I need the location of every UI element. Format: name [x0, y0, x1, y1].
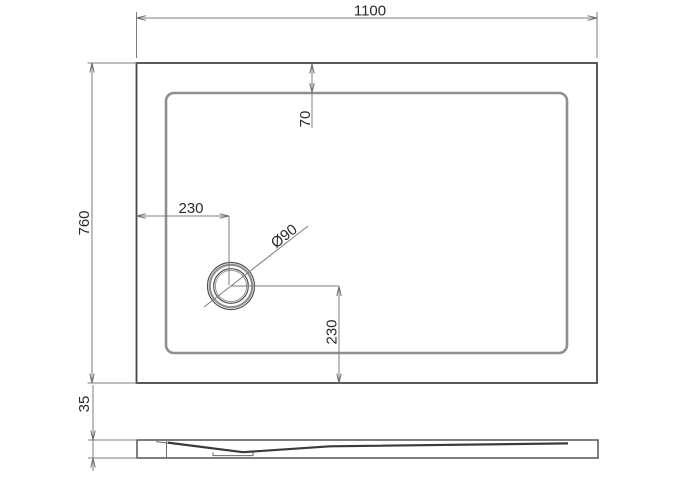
- dim-width-1100: 1100: [137, 3, 598, 59]
- shower-tray-technical-drawing: 1100 760 70 230: [0, 0, 675, 478]
- dim-label-drain-x: 230: [178, 200, 203, 217]
- tray-inner-rim-edge: [166, 93, 567, 353]
- drain-diameter-callout: Ø90: [204, 221, 308, 307]
- tray-profile-outline: [137, 440, 598, 458]
- dim-label-height: 35: [76, 396, 93, 413]
- basin-floor-line: [243, 443, 568, 452]
- dim-label-width: 1100: [354, 3, 386, 20]
- dim-label-drain-y: 230: [324, 319, 341, 344]
- top-view: [137, 63, 598, 383]
- tray-outer-edge: [137, 63, 598, 383]
- technical-drawing-page: 1100 760 70 230: [0, 0, 675, 478]
- dim-depth-760: 760: [76, 63, 137, 383]
- dim-height-35: 35: [76, 385, 137, 471]
- dim-label-depth: 760: [76, 210, 93, 235]
- dim-label-drain-diameter: Ø90: [268, 221, 301, 252]
- dim-rim-70: 70: [297, 64, 314, 129]
- dim-label-rim: 70: [297, 111, 314, 128]
- basin-slope-line-lower: [168, 443, 243, 453]
- side-view: [137, 440, 598, 458]
